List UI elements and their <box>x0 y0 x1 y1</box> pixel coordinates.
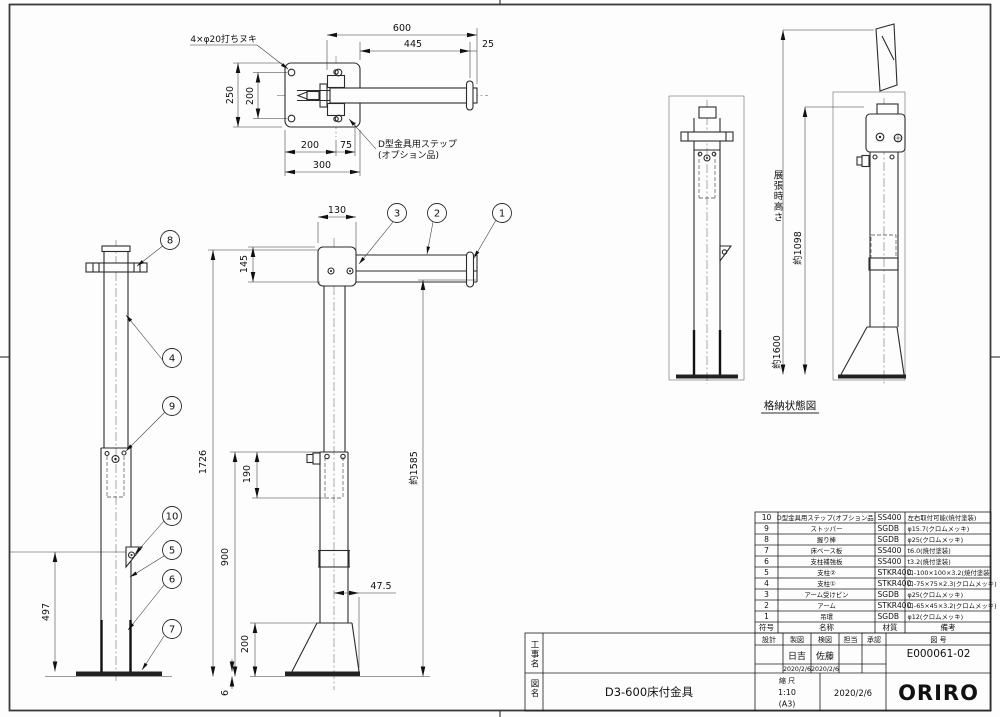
balloon-5: 5 <box>169 546 175 557</box>
part-no: 9 <box>764 524 769 533</box>
dim-300: 300 <box>313 160 331 171</box>
part-remarks: 左右取付可能(焼付塗装) <box>908 513 977 522</box>
part-no: 7 <box>764 546 769 555</box>
part-remarks: φ25(クロムメッキ) <box>908 591 964 599</box>
col-drawing-no: 図 号 <box>930 636 946 644</box>
part-remarks: φ25(クロムメッキ) <box>908 536 964 544</box>
project-name-label: 工事名 <box>529 640 539 669</box>
balloon-7: 7 <box>169 625 175 636</box>
dim-190: 190 <box>242 465 253 483</box>
stored-height-value: 約1098 <box>792 231 804 265</box>
sheet-size: (A3) <box>779 700 796 709</box>
dim-1726: 1726 <box>198 450 209 474</box>
draft-date: 2020/2/6 <box>783 666 811 673</box>
col-draft: 製図 <box>790 635 804 644</box>
deployed-height-label: 展張時高さ <box>772 170 784 223</box>
part-material: SGDB <box>878 524 900 533</box>
part-remarks: ロ-75×75×2.3(クロムメッキ) <box>908 580 997 588</box>
part-material: STKR400 <box>878 601 912 610</box>
part-no: 3 <box>764 590 769 599</box>
step-note-line2: (オプション品) <box>378 150 439 161</box>
dim-600: 600 <box>393 23 411 34</box>
part-material: STKR400 <box>878 579 912 588</box>
part-material: SS400 <box>878 557 902 566</box>
part-remarks: ロ-65×45×3.2(クロムメッキ) <box>908 602 997 610</box>
part-material: SGDB <box>878 612 900 621</box>
part-name: 吊環 <box>820 613 833 621</box>
balloon-2: 2 <box>434 209 440 220</box>
drawing-number: E000061-02 <box>907 648 971 660</box>
part-name: 床ベース板 <box>811 546 843 555</box>
balloon-10: 10 <box>166 512 179 523</box>
part-no: 5 <box>764 568 769 577</box>
part-no: 8 <box>764 535 769 544</box>
scale-value: 1:10 <box>778 688 796 697</box>
check-date: 2020/2/6 <box>811 666 839 673</box>
drawing-name-label: 図名 <box>529 679 539 698</box>
part-no: 4 <box>764 579 769 588</box>
balloon-3: 3 <box>394 209 400 220</box>
part-name: アーム <box>817 602 836 610</box>
part-material: SGDB <box>878 535 900 544</box>
balloon-1: 1 <box>499 209 505 220</box>
col-check: 検図 <box>818 635 832 644</box>
stored-caption: 格納状態図 <box>764 399 817 412</box>
part-no: 6 <box>764 557 769 566</box>
dim-200-bottom: 200 <box>301 140 319 151</box>
dim-497: 497 <box>41 603 52 621</box>
part-name: ストッパー <box>811 525 843 533</box>
dim-445: 445 <box>404 39 422 50</box>
title-block: 工事名 図名 D3-600床付金具 設計 製図 検図 担当 承認 図 号 日吉 … <box>525 633 991 711</box>
parts-header-remarks: 備考 <box>941 622 956 632</box>
part-no: 1 <box>764 612 769 621</box>
part-material: SS400 <box>878 546 902 555</box>
part-remarks: t3.2(焼付塗装) <box>908 557 951 566</box>
col-design: 設計 <box>762 635 776 644</box>
balloon-8: 8 <box>167 236 173 247</box>
dim-200-left: 200 <box>245 87 256 105</box>
part-remarks: φ15.7(クロムメッキ) <box>908 525 970 533</box>
part-name: 握り棒 <box>817 535 837 544</box>
issue-date: 2020/2/6 <box>834 689 872 699</box>
part-name: 支柱補強板 <box>811 557 844 566</box>
part-remarks: t6.0(焼付塗装) <box>908 546 951 555</box>
part-name: 支柱① <box>817 579 836 588</box>
dim-130: 130 <box>328 205 346 216</box>
parts-header-name: 名称 <box>819 622 834 632</box>
col-charge: 担当 <box>844 635 858 644</box>
dim-1585: 約1585 <box>408 451 420 485</box>
deployed-height-value: 約1600 <box>771 335 783 369</box>
dim-47-5: 47.5 <box>370 581 391 592</box>
balloon-6: 6 <box>169 575 175 586</box>
part-remarks: ロ-100×100×3.2(焼付塗装) <box>908 568 993 577</box>
part-name: 支柱② <box>817 568 836 577</box>
parts-header-material: 材質 <box>883 622 898 632</box>
company-logo: ORIRO <box>898 681 979 705</box>
check-name: 佐藤 <box>816 650 834 662</box>
punch-note: 4×φ20打ちヌキ <box>190 33 257 45</box>
dim-6: 6 <box>220 690 231 696</box>
plan-view: 600 445 25 250 200 200 75 300 4×φ20打ちヌキ … <box>190 23 494 176</box>
parts-header-no: 符号 <box>759 622 774 632</box>
col-approve: 承認 <box>867 635 881 644</box>
scale-label: 縮 尺 <box>779 676 795 685</box>
drawing-name: D3-600床付金具 <box>605 685 694 699</box>
dim-250: 250 <box>225 86 236 104</box>
dim-200-cone: 200 <box>240 635 251 653</box>
front-elevation-view: 130 145 1726 900 190 200 6 47.5 約1585 <box>198 204 512 697</box>
balloon-4: 4 <box>169 354 175 365</box>
parts-table: 10 D型金具用ステップ(オプション品) SS400 左右取付可能(焼付塗装) … <box>755 512 997 633</box>
part-no: 2 <box>764 601 769 610</box>
dim-145: 145 <box>239 255 250 273</box>
part-material: SGDB <box>878 590 900 599</box>
part-material: STKR400 <box>878 568 912 577</box>
balloon-9: 9 <box>169 402 175 413</box>
stored-state-views: 展張時高さ 約1600 約1098 格納状態図 <box>669 24 906 413</box>
part-name: D型金具用ステップ(オプション品) <box>777 513 876 522</box>
part-name: アーム受けピン <box>804 590 848 599</box>
dim-75: 75 <box>340 140 352 151</box>
dim-900: 900 <box>220 548 231 566</box>
step-note-line1: D型金具用ステップ <box>378 138 457 150</box>
part-no: 10 <box>762 513 772 522</box>
drawing-sheet: 600 445 25 250 200 200 75 300 4×φ20打ちヌキ … <box>0 0 1000 717</box>
part-material: SS400 <box>878 513 902 522</box>
part-remarks: φ12(クロムメッキ) <box>908 613 964 621</box>
side-elevation-view: 497 8 4 9 10 5 6 7 <box>10 231 182 683</box>
draft-name: 日吉 <box>788 651 806 662</box>
dim-25: 25 <box>482 39 494 50</box>
